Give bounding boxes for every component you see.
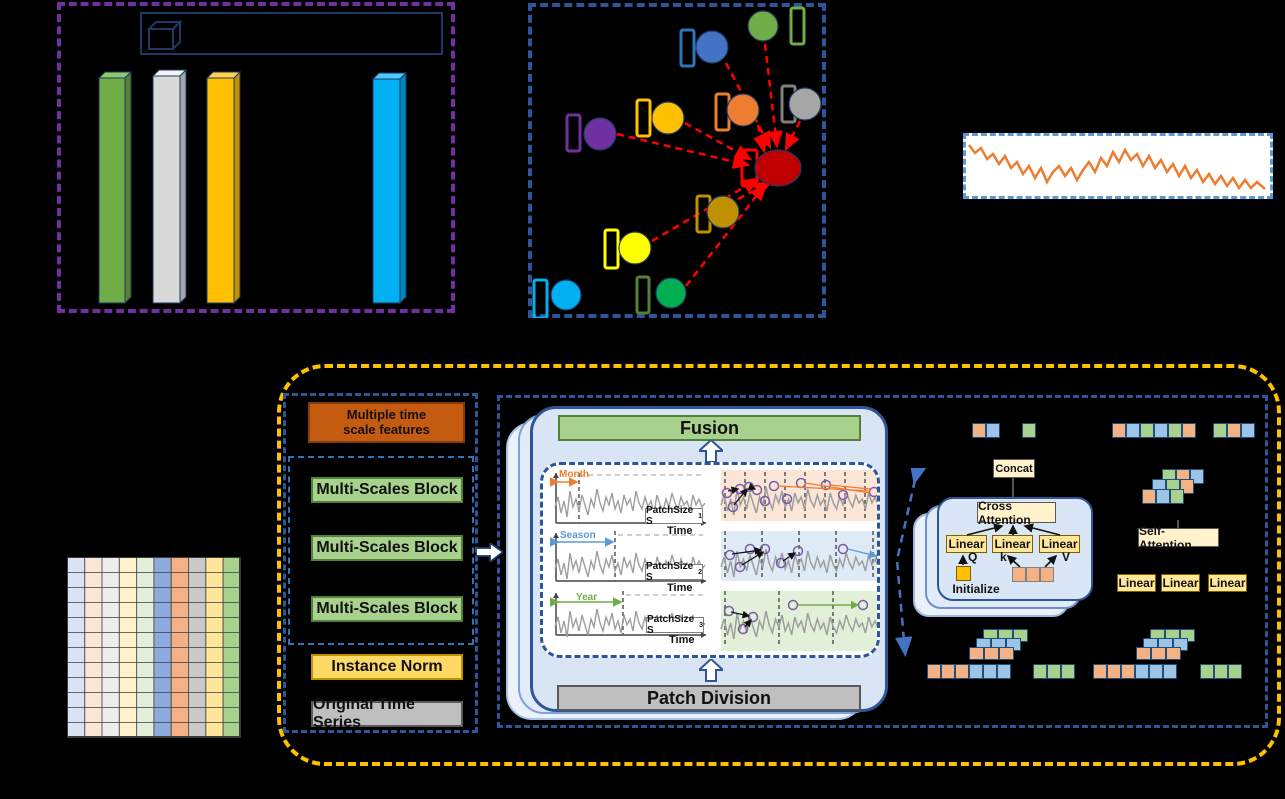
up-arrow-patch-division	[699, 659, 723, 682]
token	[969, 647, 984, 660]
token	[1136, 647, 1151, 660]
scale-plots-graphics	[543, 465, 880, 658]
initialize-label: Initialize	[940, 583, 1012, 597]
scale-plots-region: Month PatchSize S1 Time Season PatchSize…	[540, 462, 880, 658]
token	[1156, 489, 1170, 504]
pipeline-flow-arrow	[476, 543, 503, 562]
token	[1241, 423, 1255, 438]
season-row-plot	[553, 531, 880, 584]
token	[969, 664, 983, 679]
multi-scales-block-3: Multi-Scales Block	[311, 596, 463, 622]
token	[1135, 664, 1149, 679]
k-label: k	[1000, 551, 1007, 565]
graph-nodes	[551, 11, 821, 310]
linear-sa-3: Linear	[1208, 574, 1247, 592]
self-attention-box: Self- Attention	[1138, 528, 1219, 547]
month-label: Month	[559, 469, 589, 481]
fusion-block: Fusion	[558, 415, 861, 441]
input-grid	[67, 557, 241, 738]
token	[1200, 664, 1214, 679]
token-row	[1112, 423, 1196, 438]
multi-scales-block-2: Multi-Scales Block	[311, 535, 463, 561]
patchsize-s2-box: PatchSize S2	[645, 564, 703, 580]
concat-box: Concat	[993, 459, 1035, 478]
token	[1061, 664, 1075, 679]
token	[1022, 423, 1036, 438]
token-row	[1213, 423, 1255, 438]
token-row	[972, 423, 1000, 438]
bar-chart-bars	[57, 2, 455, 313]
token	[1154, 423, 1168, 438]
token	[1033, 664, 1047, 679]
season-label: Season	[560, 530, 596, 542]
time-label-1: Time	[667, 525, 692, 538]
bar-gold	[207, 72, 240, 303]
multiple-time-scale-block: Multiple time scale features	[308, 402, 465, 443]
token	[1142, 489, 1156, 504]
token	[983, 664, 997, 679]
token	[1040, 567, 1054, 582]
token	[984, 647, 999, 660]
token	[997, 664, 1011, 679]
token	[1228, 664, 1242, 679]
token	[999, 647, 1014, 660]
q-label: Q	[968, 551, 977, 565]
token	[1121, 664, 1135, 679]
token	[1182, 423, 1196, 438]
token-stack-row	[1142, 489, 1184, 504]
token	[1214, 664, 1228, 679]
raw-series-panel	[963, 133, 1273, 199]
bar-silver	[153, 70, 186, 303]
token	[1166, 647, 1181, 660]
token	[1170, 489, 1184, 504]
bar-cyan	[373, 73, 406, 303]
token	[1047, 664, 1061, 679]
original-time-series-block: Original Time Series	[311, 701, 463, 727]
token-row	[1033, 664, 1075, 679]
token-row	[1022, 423, 1036, 438]
token-row	[1200, 664, 1242, 679]
raw-series-line	[967, 137, 1271, 197]
patch-division-block: Patch Division	[557, 685, 861, 711]
linear-sa-2: Linear	[1161, 574, 1200, 592]
initialize-token	[956, 566, 971, 581]
instance-norm-block: Instance Norm	[311, 654, 463, 680]
figure-canvas: Multiple time scale features Multi-Scale…	[0, 0, 1285, 799]
year-row-plot	[553, 591, 880, 647]
time-label-2: Time	[667, 582, 692, 595]
token-stack-row	[1136, 647, 1181, 660]
token	[1227, 423, 1241, 438]
up-arrow-fusion	[699, 440, 723, 463]
month-long-links	[778, 483, 870, 493]
kv-token-row	[1012, 567, 1054, 582]
token	[1112, 423, 1126, 438]
token	[1012, 567, 1026, 582]
linear-sa-1: Linear	[1117, 574, 1156, 592]
bar-green	[99, 72, 131, 303]
token-row	[927, 664, 1011, 679]
token	[927, 664, 941, 679]
token	[1140, 423, 1154, 438]
token	[1026, 567, 1040, 582]
token	[972, 423, 986, 438]
patchsize-s1-box: PatchSize S1	[645, 508, 703, 524]
token	[1093, 664, 1107, 679]
token	[955, 664, 969, 679]
patchsize-s3-box: PatchSize S3	[646, 617, 704, 633]
token	[1107, 664, 1121, 679]
token	[1163, 664, 1177, 679]
token-row	[1093, 664, 1177, 679]
multi-scales-block-1: Multi-Scales Block	[311, 477, 463, 503]
year-label: Year	[576, 592, 597, 604]
token	[1126, 423, 1140, 438]
token	[986, 423, 1000, 438]
token	[941, 664, 955, 679]
time-label-3: Time	[669, 634, 694, 647]
month-row-plot	[553, 472, 880, 526]
token	[1151, 647, 1166, 660]
node-graph	[530, 3, 826, 318]
token	[1213, 423, 1227, 438]
token	[1149, 664, 1163, 679]
token	[1168, 423, 1182, 438]
token-stack-row	[969, 647, 1014, 660]
v-label: V	[1062, 551, 1070, 565]
